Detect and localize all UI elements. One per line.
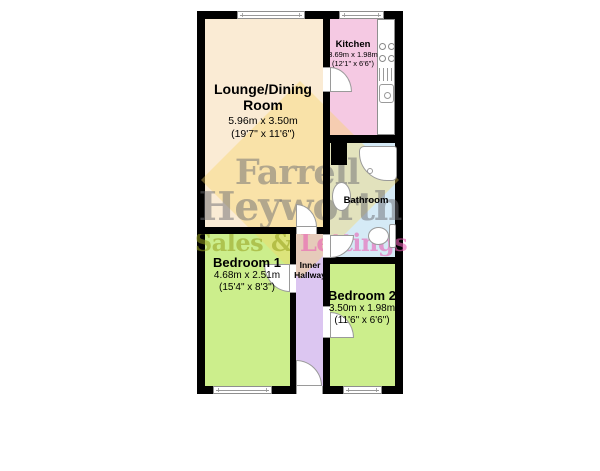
hallway-name: Inner xyxy=(294,260,326,270)
bedroom2-label: Bedroom 2 3.50m x 1.98m (11'6" x 6'6") xyxy=(328,288,396,327)
wall-kitchen-bathroom xyxy=(323,135,403,143)
bedroom2-name: Bedroom 2 xyxy=(328,288,396,303)
door-opening-lounge-hallway xyxy=(296,227,317,234)
lounge-name: Lounge/Dining xyxy=(214,81,312,97)
bedroom2-dims-imperial: (11'6" x 6'6") xyxy=(328,315,396,327)
floorplan-image: Farrell Heyworth Sales & Lettings Lounge… xyxy=(0,0,600,471)
hallway-label: Inner Hallway xyxy=(294,260,326,280)
hallway-name-line2: Hallway xyxy=(294,270,326,280)
window-kitchen xyxy=(339,11,384,19)
hob-burner-icon xyxy=(379,43,386,50)
bedroom1-dims-imperial: (15'4" x 8'3") xyxy=(213,282,281,294)
bathroom-label: Bathroom xyxy=(344,195,389,206)
wall-stub-hallway xyxy=(317,227,323,234)
bedroom2-dims-metric: 3.50m x 1.98m xyxy=(328,303,396,315)
lounge-dims-metric: 5.96m x 3.50m xyxy=(214,115,312,128)
toilet-tank-icon xyxy=(389,224,396,248)
kitchen-dims-metric: 3.69m x 1.98m xyxy=(328,50,378,59)
lounge-name-line2: Room xyxy=(214,97,312,113)
entry-door-opening xyxy=(296,386,323,394)
hob-burner-icon xyxy=(388,55,395,62)
hob-burner-icon xyxy=(379,55,386,62)
drainer-icon xyxy=(379,68,393,81)
kitchen-dims-imperial: (12'1" x 6'6") xyxy=(328,59,378,68)
bedroom1-name: Bedroom 1 xyxy=(213,255,281,270)
wall-bathroom-bedroom2 xyxy=(323,257,403,264)
window-bedroom1 xyxy=(213,386,272,394)
lounge-dims-imperial: (19'7" x 11'6") xyxy=(214,128,312,141)
bedroom1-dims-metric: 4.68m x 2.51m xyxy=(213,270,281,282)
window-lounge xyxy=(237,11,305,19)
kitchen-label: Kitchen 3.69m x 1.98m (12'1" x 6'6") xyxy=(328,39,378,68)
door-opening-bathroom xyxy=(323,234,330,258)
door-opening-kitchen xyxy=(323,67,330,92)
window-bedroom2 xyxy=(343,386,382,394)
kitchen-sink-icon xyxy=(379,84,394,103)
wall-stub-bathroom xyxy=(331,143,347,165)
bedroom1-label: Bedroom 1 4.68m x 2.51m (15'4" x 8'3") xyxy=(213,255,281,294)
hob-burner-icon xyxy=(388,43,395,50)
lounge-label: Lounge/Dining Room 5.96m x 3.50m (19'7" … xyxy=(214,81,312,141)
wall-lounge-bedroom1 xyxy=(197,227,296,234)
toilet-icon xyxy=(368,227,389,245)
kitchen-name: Kitchen xyxy=(328,39,378,50)
